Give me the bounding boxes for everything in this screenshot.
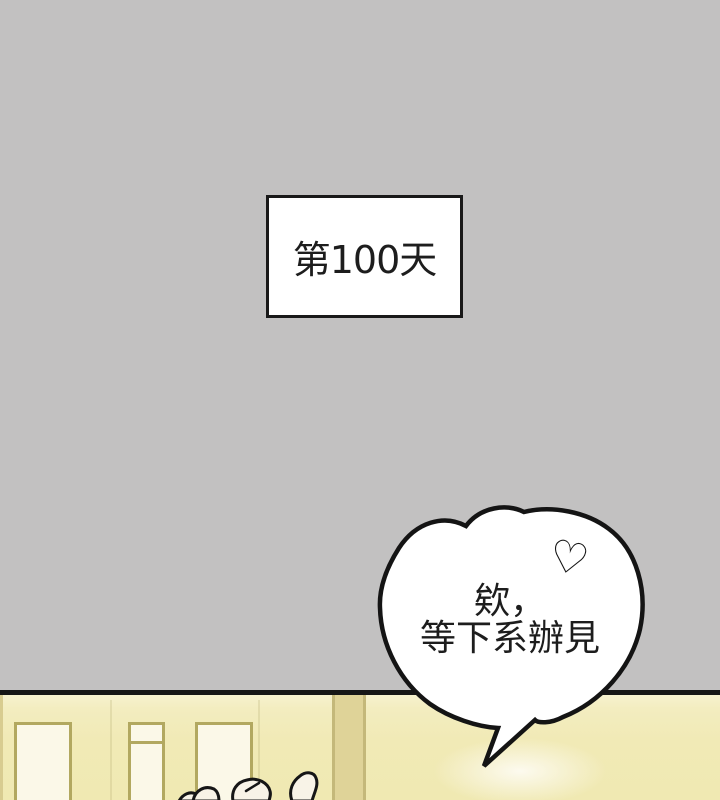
speech-bubble xyxy=(0,0,720,800)
speech-line-2: 等下系辦見 xyxy=(380,620,640,657)
webtoon-panel: 第100天 ♡ 欸， 等下系辦見 xyxy=(0,0,720,800)
speech-line-1: 欸， xyxy=(380,583,640,620)
speech-bubble-text: 欸， 等下系辦見 xyxy=(380,583,640,657)
